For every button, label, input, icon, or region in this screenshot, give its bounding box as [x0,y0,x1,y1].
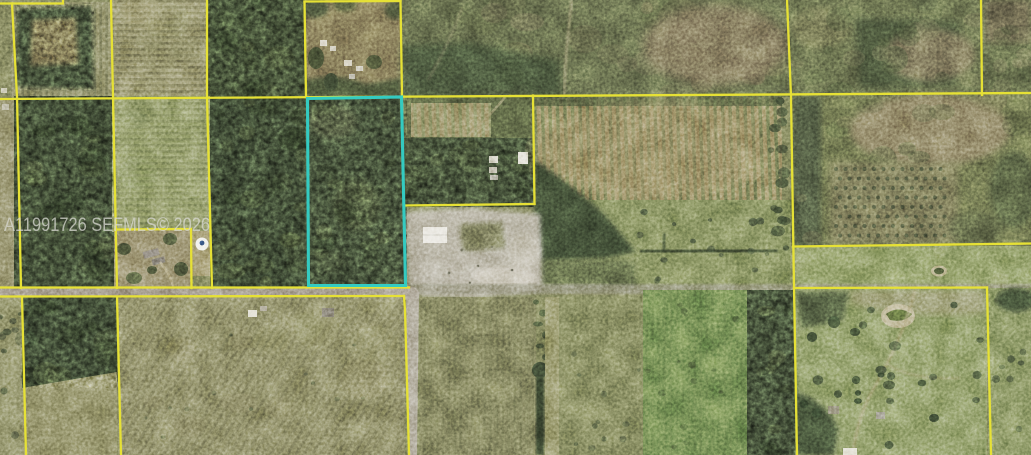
svg-text:A11991726 SEFMLS© 2026: A11991726 SEFMLS© 2026 [4,215,210,236]
